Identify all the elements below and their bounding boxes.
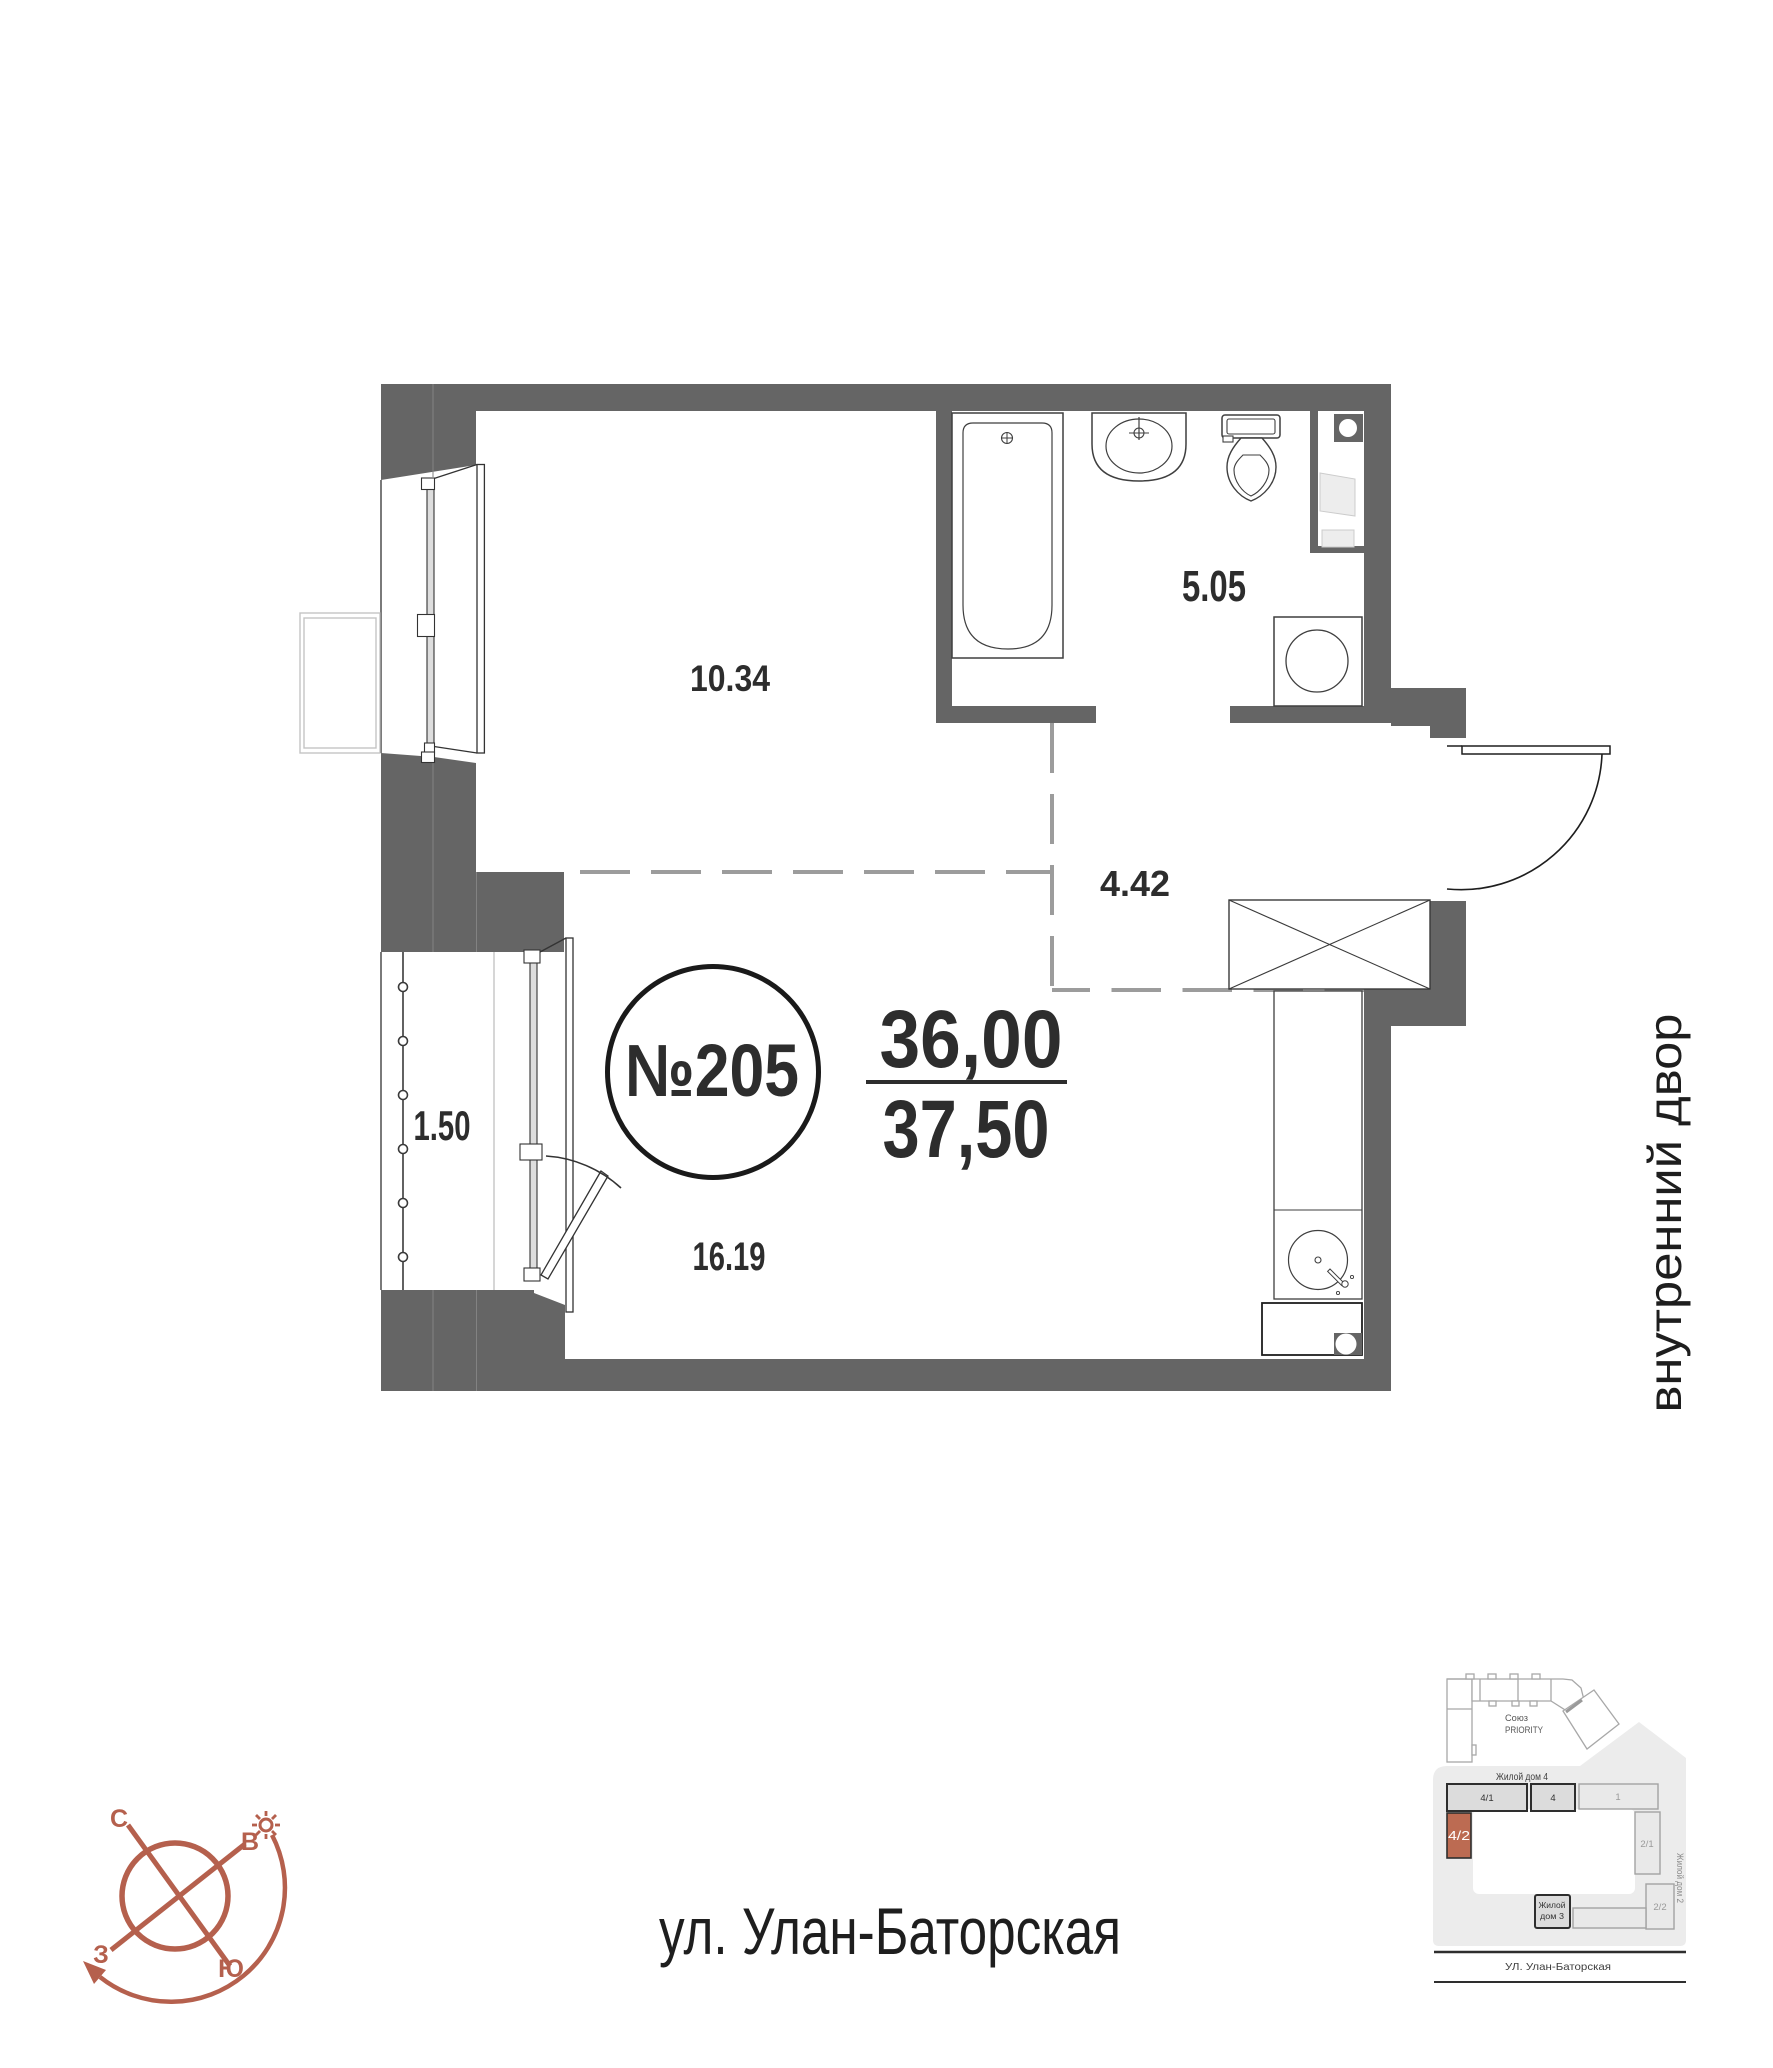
svg-text:ул. Улан-Баторская: ул. Улан-Баторская [659,1894,1121,1968]
svg-text:Союз: Союз [1505,1713,1528,1724]
svg-text:С: С [110,1805,128,1833]
svg-text:4/2: 4/2 [1448,1829,1470,1843]
svg-text:внутренний двор: внутренний двор [1639,1014,1691,1413]
svg-text:Жилой дом 2: Жилой дом 2 [1674,1853,1685,1903]
svg-text:PRIORITY: PRIORITY [1505,1725,1544,1736]
svg-text:5.05: 5.05 [1182,562,1246,611]
svg-text:1.50: 1.50 [414,1102,471,1149]
svg-text:2/2: 2/2 [1653,1902,1666,1913]
svg-text:4: 4 [1550,1793,1555,1804]
svg-text:4.42: 4.42 [1100,863,1170,904]
svg-text:1: 1 [1615,1792,1620,1803]
svg-text:Ю: Ю [218,1955,244,1983]
svg-text:4/1: 4/1 [1480,1793,1493,1804]
svg-text:2/1: 2/1 [1640,1839,1653,1850]
svg-text:10.34: 10.34 [690,658,770,699]
svg-text:УЛ. Улан-Баторская: УЛ. Улан-Баторская [1505,1961,1611,1973]
svg-text:Жилой: Жилой [1539,1900,1566,1910]
svg-text:дом 3: дом 3 [1540,1911,1564,1921]
svg-text:№205: №205 [625,1029,799,1112]
svg-text:36,00: 36,00 [880,994,1063,1085]
svg-text:16.19: 16.19 [693,1235,766,1279]
svg-text:В: В [241,1828,259,1856]
svg-text:Жилой дом 4: Жилой дом 4 [1496,1772,1548,1783]
svg-text:З: З [93,1941,109,1969]
svg-text:37,50: 37,50 [883,1084,1050,1175]
